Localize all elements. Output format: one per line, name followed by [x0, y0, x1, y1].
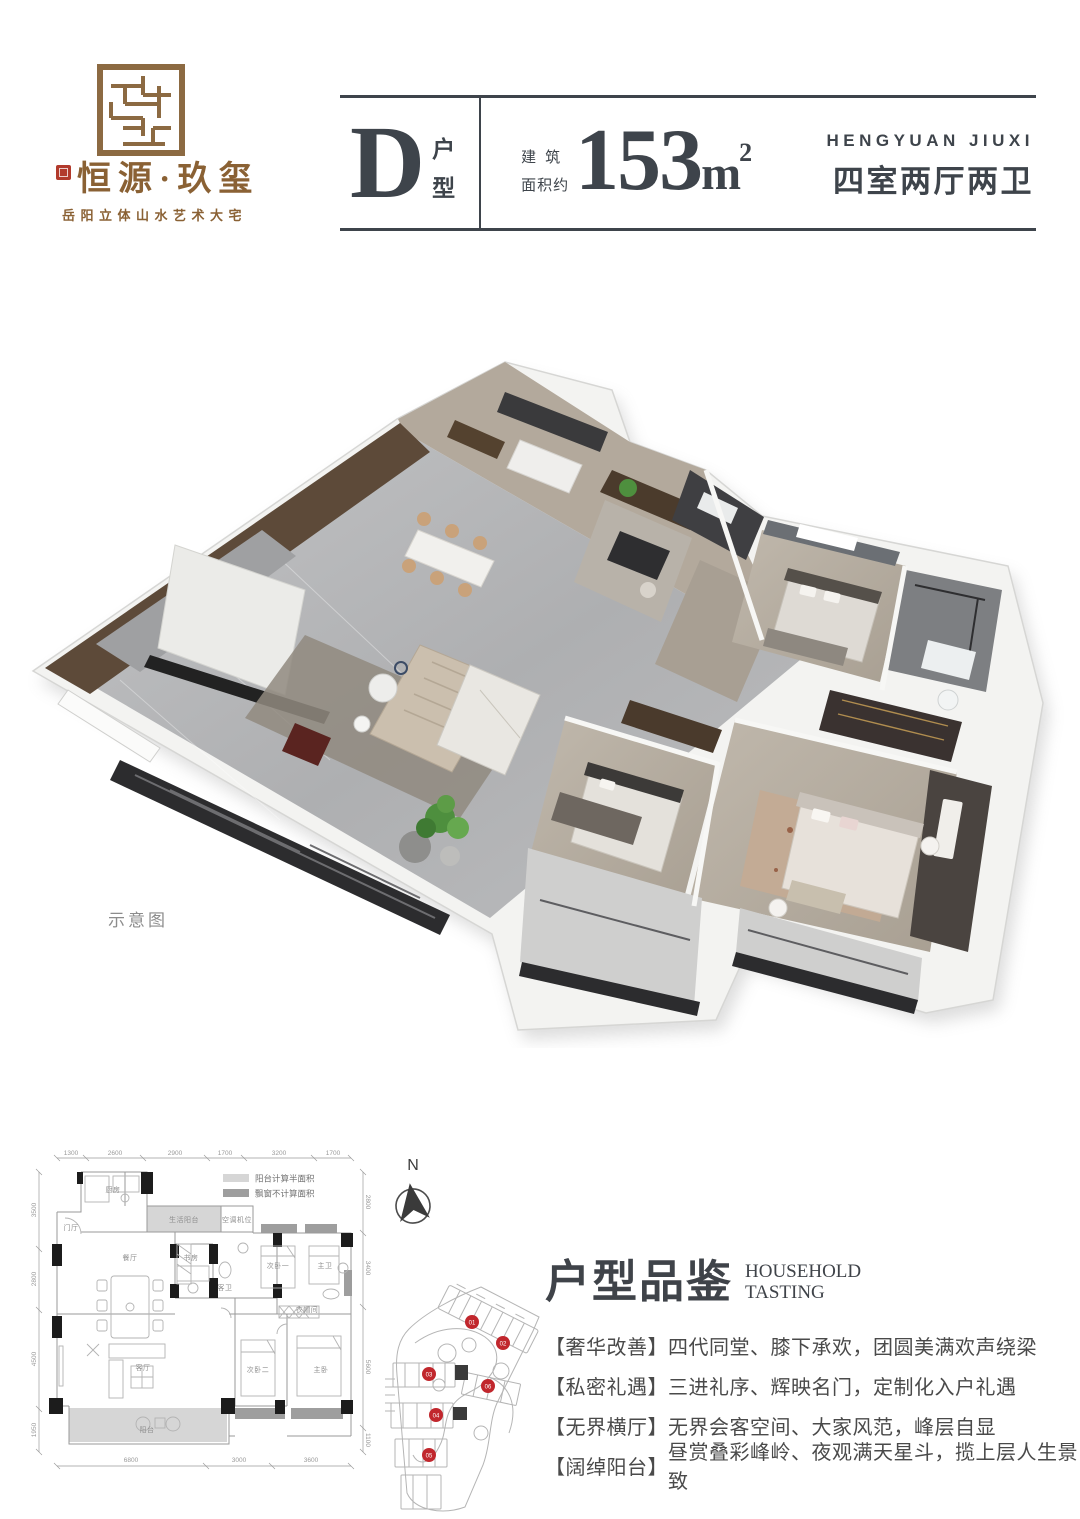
- selling-point-4-tag: 【阔绰阳台】: [545, 1451, 668, 1480]
- svg-text:1950: 1950: [31, 1422, 38, 1437]
- vanity-basin: [938, 690, 958, 710]
- selling-point-2-tag: 【私密礼遇】: [545, 1371, 668, 1400]
- unit-label-char-2: 型: [432, 169, 455, 203]
- project-name-en: HENGYUAN JIUXI: [826, 131, 1034, 151]
- svg-text:03: 03: [426, 1373, 433, 1379]
- svg-text:5600: 5600: [364, 1360, 371, 1375]
- svg-text:2600: 2600: [108, 1150, 123, 1157]
- selling-point-1: 【奢华改善】四代同堂、膝下承欢，团圆美满欢声绕梁: [545, 1325, 1080, 1365]
- svg-text:书房: 书房: [184, 1253, 199, 1262]
- svg-text:01: 01: [469, 1321, 476, 1327]
- legend-swatch-baywindow: [223, 1189, 249, 1197]
- legend-swatch-balcony: [223, 1174, 249, 1182]
- svg-text:3200: 3200: [272, 1150, 287, 1157]
- render-caption: 示意图: [108, 906, 168, 931]
- brand-lockup: 恒源·玖玺: [56, 163, 259, 197]
- svg-text:次卧二: 次卧二: [247, 1365, 270, 1374]
- svg-text:门厅: 门厅: [64, 1223, 79, 1232]
- floorplan-2d: 阳台计算半面积 飘窗不计算面积: [25, 1148, 375, 1483]
- selling-point-4-text: 昼赏叠彩峰岭、夜观满天星斗，揽上层人生景致: [668, 1436, 1080, 1494]
- brand-name: 恒源·玖玺: [77, 163, 259, 197]
- svg-text:02: 02: [500, 1342, 507, 1348]
- selling-points-list: 【奢华改善】四代同堂、膝下承欢，团圆美满欢声绕梁 【私密礼遇】三进礼序、辉映名门…: [545, 1325, 1080, 1485]
- svg-text:2900: 2900: [168, 1150, 183, 1157]
- area-prefix-line1: 建筑: [521, 146, 569, 167]
- compass-north-label: N: [407, 1157, 419, 1174]
- coffee-table: [369, 674, 397, 702]
- svg-text:客厅: 客厅: [136, 1363, 151, 1372]
- svg-text:阳台: 阳台: [140, 1425, 155, 1434]
- selling-point-1-tag: 【奢华改善】: [545, 1331, 668, 1360]
- svg-text:6800: 6800: [124, 1457, 139, 1464]
- section-title-en-line1: HOUSEHOLD: [745, 1262, 861, 1283]
- siteplan-linework: [385, 1283, 540, 1511]
- svg-text:1700: 1700: [218, 1150, 233, 1157]
- header-divider: [479, 98, 481, 228]
- unit-letter: D: [350, 115, 425, 211]
- section-title-cn: 户型品鉴: [545, 1260, 733, 1305]
- area-prefix: 建筑 面积约: [521, 146, 569, 195]
- svg-text:1700: 1700: [326, 1150, 341, 1157]
- legend-label-baywindow: 飘窗不计算面积: [255, 1189, 315, 1199]
- floorplan-3d-render: [0, 348, 1080, 1048]
- svg-text:衣帽间: 衣帽间: [296, 1305, 319, 1314]
- section-title-en-line2: TASTING: [745, 1283, 861, 1304]
- svg-text:3600: 3600: [304, 1457, 319, 1464]
- svg-text:3500: 3500: [31, 1202, 38, 1217]
- plan-dims-left: 3500 2800 4500 1950: [31, 1202, 38, 1437]
- svg-text:空调机位: 空调机位: [222, 1215, 252, 1224]
- unit-type-label: 户 型: [432, 130, 455, 203]
- svg-text:3000: 3000: [232, 1457, 247, 1464]
- svg-text:05: 05: [426, 1454, 433, 1460]
- svg-text:1100: 1100: [364, 1433, 371, 1447]
- area-superscript: 2: [739, 138, 752, 167]
- section-title-en: HOUSEHOLD TASTING: [745, 1262, 861, 1304]
- area-prefix-line2: 面积约: [521, 174, 569, 195]
- area-unit: m: [701, 147, 739, 200]
- svg-text:厨房: 厨房: [106, 1185, 121, 1194]
- study-plant: [619, 479, 637, 497]
- plan-dims-right: 2800 3400 5600 1100: [364, 1195, 371, 1448]
- svg-text:2800: 2800: [364, 1195, 371, 1210]
- selling-point-2-text: 三进礼序、辉映名门，定制化入户礼遇: [668, 1371, 1017, 1400]
- svg-text:主卧: 主卧: [314, 1365, 329, 1374]
- svg-text:餐厅: 餐厅: [123, 1253, 138, 1262]
- brand-emblem-icon: [95, 62, 187, 158]
- unit-header-bar: D 户 型 建筑 面积约 153m2 HENGYUAN JIUXI 四室两厅两卫: [340, 95, 1036, 231]
- header-right-block: HENGYUAN JIUXI 四室两厅两卫: [826, 131, 1034, 201]
- side-table: [354, 716, 370, 732]
- plan-dims-top: 1300 2600 2900 1700 3200 1700: [64, 1150, 341, 1157]
- svg-text:次卧一: 次卧一: [267, 1261, 290, 1270]
- legend-label-balcony: 阳台计算半面积: [255, 1174, 315, 1184]
- plan-dims-bottom: 6800 3000 3600: [124, 1457, 319, 1464]
- selling-point-4: 【阔绰阳台】昼赏叠彩峰岭、夜观满天星斗，揽上层人生景致: [545, 1445, 1080, 1485]
- siteplan-dark-blocks: [453, 1365, 468, 1420]
- compass: N: [383, 1152, 443, 1244]
- household-tasting-section: 户型品鉴 HOUSEHOLD TASTING 【奢华改善】四代同堂、膝下承欢，团…: [545, 1260, 1080, 1485]
- red-seal-icon: [56, 165, 71, 180]
- unit-label-char-1: 户: [432, 130, 455, 164]
- svg-text:04: 04: [433, 1414, 440, 1420]
- svg-text:1300: 1300: [64, 1150, 79, 1157]
- svg-text:主卫: 主卫: [318, 1261, 333, 1270]
- planter-pot-2: [440, 846, 460, 866]
- svg-text:06: 06: [485, 1385, 492, 1391]
- svg-text:4500: 4500: [31, 1351, 38, 1366]
- compass-rose-icon: [393, 1181, 432, 1225]
- selling-point-3-tag: 【无界横厅】: [545, 1411, 668, 1440]
- svg-text:3400: 3400: [364, 1261, 371, 1276]
- study-chair: [640, 582, 656, 598]
- nightstand: [769, 899, 787, 917]
- site-plan: 01 02 03 06 04 05: [385, 1283, 547, 1519]
- brand-tagline: 岳阳立体山水艺术大宅: [62, 205, 247, 224]
- area-number: 153: [575, 112, 701, 209]
- area-value: 153m2: [575, 117, 752, 205]
- svg-text:客卫: 客卫: [218, 1283, 233, 1292]
- poster-page: 恒源·玖玺 岳阳立体山水艺术大宅 D 户 型 建筑 面积约 153m2 HENG…: [0, 0, 1080, 1519]
- selling-point-1-text: 四代同堂、膝下承欢，团圆美满欢声绕梁: [668, 1331, 1037, 1360]
- nightstand-2: [921, 837, 939, 855]
- svg-text:2800: 2800: [31, 1271, 38, 1286]
- svg-text:生活阳台: 生活阳台: [169, 1215, 199, 1224]
- selling-point-2: 【私密礼遇】三进礼序、辉映名门，定制化入户礼遇: [545, 1365, 1080, 1405]
- section-title-row: 户型品鉴 HOUSEHOLD TASTING: [545, 1260, 1080, 1305]
- room-layout-text: 四室两厅两卫: [826, 156, 1034, 201]
